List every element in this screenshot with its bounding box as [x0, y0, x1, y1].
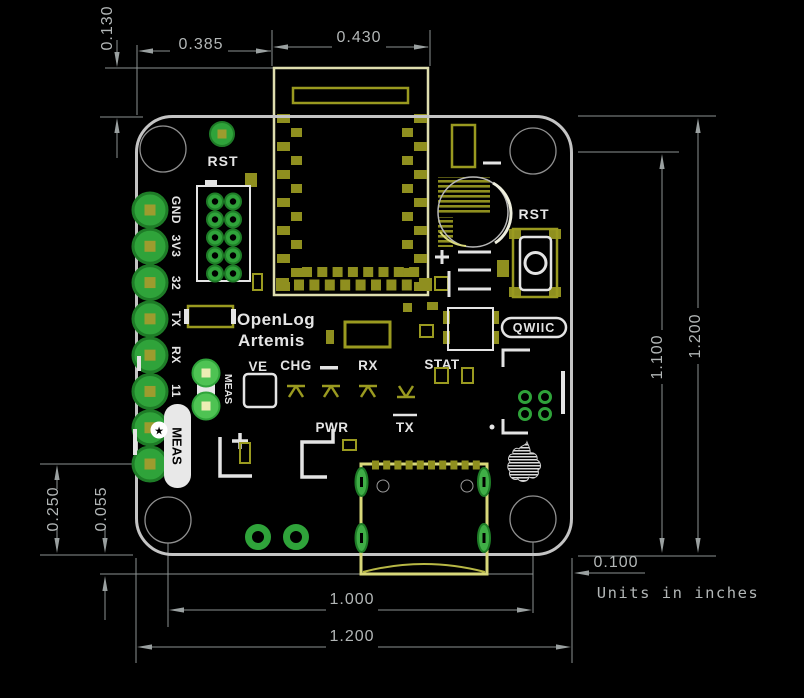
- chg-label: CHG: [280, 358, 312, 373]
- module-antenna: [293, 88, 408, 103]
- drawing-canvas: 0.130 0.385 0.430 1.200 1.100 0.250 0.05…: [0, 0, 804, 698]
- meas-jumper: MEAS: [193, 360, 235, 420]
- module-pad: [414, 226, 427, 235]
- star-icon: ★: [154, 426, 164, 438]
- via-pad: [520, 409, 531, 420]
- usb-pad: [394, 461, 401, 470]
- module-pad: [402, 128, 413, 137]
- dim-module-left-offset: 0.385: [178, 36, 223, 53]
- dimension-arrow: [414, 44, 429, 49]
- edge-tick: [133, 429, 137, 455]
- pin-pad-center: [145, 205, 156, 216]
- module-pad: [419, 278, 432, 291]
- usb-pad: [417, 461, 424, 470]
- module-pad: [340, 280, 350, 291]
- stat-label: STAT: [424, 357, 459, 372]
- dimension-arrow: [695, 118, 700, 133]
- rst-pad-group: RST: [208, 122, 258, 187]
- module-pad: [317, 267, 327, 277]
- dim-pin-to-edge: 0.250: [45, 486, 62, 531]
- module-pad: [356, 280, 366, 291]
- rst-pad-center: [218, 130, 227, 139]
- crystal-outline: [345, 322, 390, 347]
- passive-component: [326, 330, 334, 344]
- pin-label-rx: RX: [169, 346, 183, 364]
- via-grid: [520, 392, 551, 420]
- pin-pad-center: [145, 277, 156, 288]
- usb-pad: [462, 461, 469, 470]
- icsp-pad-hole: [230, 270, 236, 276]
- pin-label-tx: TX: [169, 311, 183, 327]
- alignment-hole: [461, 480, 473, 492]
- module-pad: [414, 198, 427, 207]
- pin-pad-center: [145, 241, 156, 252]
- icsp-pad-hole: [212, 216, 218, 222]
- icsp-pad-hole: [212, 252, 218, 258]
- annular-pad: [287, 528, 306, 547]
- via-pad: [520, 392, 531, 403]
- rst-top-label: RST: [208, 153, 239, 169]
- dimension-arrow: [114, 118, 119, 133]
- module-castellated-pads: [276, 114, 432, 291]
- module-pad: [379, 267, 389, 277]
- alignment-hole: [377, 480, 389, 492]
- module-pad: [371, 280, 381, 291]
- dim-board-height: 1.200: [687, 313, 704, 358]
- icsp-pads: [207, 194, 241, 282]
- module-pad: [333, 267, 343, 277]
- dim-module-top-offset: 0.130: [99, 5, 116, 50]
- passive-component: [462, 368, 473, 383]
- led-label-row: VE CHG RX STAT: [244, 357, 473, 407]
- usb-pad: [473, 461, 480, 470]
- dimension-arrow: [556, 644, 571, 649]
- dimension-arrow: [169, 607, 184, 612]
- module-pad: [302, 267, 312, 277]
- module-pad: [277, 142, 290, 151]
- module-pad: [277, 226, 290, 235]
- dimension-arrow: [137, 644, 152, 649]
- module-pad: [348, 267, 358, 277]
- dim-hole-to-bottom: 1.100: [649, 334, 666, 379]
- via-pad: [540, 409, 551, 420]
- dimension-arrow: [695, 538, 700, 553]
- module-pad: [325, 280, 335, 291]
- module-pad: [277, 170, 290, 179]
- module-pad: [386, 280, 396, 291]
- pin-pad-center: [145, 313, 156, 324]
- rx-label: RX: [358, 358, 378, 373]
- passive-component: [420, 325, 433, 337]
- connector-body: [448, 308, 493, 350]
- dim-board-width: 1.200: [329, 628, 374, 645]
- pin-pad-center: [145, 459, 156, 470]
- dim-connector-overhang: 0.055: [93, 486, 110, 531]
- usb-pad: [428, 461, 435, 470]
- icsp-pad-hole: [212, 270, 218, 276]
- dimension-arrow: [659, 538, 664, 553]
- ic-outline: [244, 374, 276, 407]
- dimension-arrow: [273, 44, 288, 49]
- icsp-header: [197, 180, 250, 282]
- pin-label-11: 11: [169, 384, 183, 398]
- module-pad: [414, 142, 427, 151]
- pin-label-3v3: 3V3: [169, 235, 183, 258]
- battery-clip-hatch: [438, 177, 490, 215]
- board-name-line2: Artemis: [238, 331, 305, 350]
- corner-bracket: [503, 350, 530, 367]
- module-pad: [402, 156, 413, 165]
- dimension-arrow: [138, 48, 153, 53]
- led-mark: [359, 386, 377, 397]
- icsp-pad-hole: [212, 198, 218, 204]
- pad-slot: [483, 477, 486, 487]
- module-pad: [402, 240, 413, 249]
- mounting-hole-top-left: [140, 126, 186, 172]
- passive-component: [435, 277, 448, 290]
- battery-holder: [435, 177, 511, 297]
- icsp-pad-hole: [212, 234, 218, 240]
- module-pad: [409, 267, 419, 277]
- module-pad: [402, 212, 413, 221]
- mounting-hole-bottom-right: [510, 496, 556, 542]
- resistor-outline: [188, 306, 233, 327]
- artemis-module: [274, 68, 432, 295]
- led-mark: [287, 386, 305, 397]
- dimension-arrow: [114, 52, 119, 67]
- usb-pad: [406, 461, 413, 470]
- left-pin-header: GND 3V3 32 TX RX 11 MEAS ★: [133, 193, 191, 488]
- mounting-hole-top-right: [510, 128, 556, 174]
- icsp-pad-hole: [230, 252, 236, 258]
- pad-slot: [360, 477, 363, 487]
- corner-bracket: [503, 419, 528, 433]
- led-mark: [397, 386, 415, 397]
- dimension-arrow: [517, 607, 532, 612]
- module-pad: [402, 280, 412, 291]
- jumper-pad-center: [202, 402, 211, 411]
- qwiic-connector: QWIIC: [443, 308, 566, 367]
- module-pad: [291, 184, 302, 193]
- meas-jumper-label: MEAS: [222, 374, 234, 404]
- component-cap: [231, 309, 236, 324]
- qwiic-label: QWIIC: [513, 321, 556, 335]
- silk-dot: [490, 425, 495, 430]
- mounting-hole-bottom-left: [145, 497, 191, 543]
- pin-label-32: 32: [169, 276, 183, 290]
- usb-pad: [450, 461, 457, 470]
- module-pad: [291, 212, 302, 221]
- bottom-right-details: [490, 371, 566, 481]
- module-pad: [277, 254, 290, 263]
- module-pad: [291, 128, 302, 137]
- module-pad: [291, 268, 302, 277]
- passive-component: [403, 303, 412, 312]
- ve-label: VE: [248, 359, 267, 374]
- power-symbol-right: [302, 429, 333, 477]
- pin-label-gnd: GND: [169, 196, 183, 224]
- pcb-dimensional-drawing: 0.130 0.385 0.430 1.200 1.100 0.250 0.05…: [0, 0, 804, 698]
- led-polarity-marks: [287, 386, 415, 397]
- dimension-arrow: [256, 48, 271, 53]
- dim-module-width: 0.430: [336, 29, 381, 46]
- rst-button-label: RST: [519, 206, 550, 222]
- dimension-arrow: [659, 154, 664, 169]
- annular-pad: [249, 528, 268, 547]
- dimension-arrow: [54, 465, 59, 480]
- module-pad: [294, 280, 304, 291]
- dimension-arrow: [102, 576, 107, 591]
- board-name-line1: OpenLog: [237, 310, 315, 329]
- usb-pad: [383, 461, 390, 470]
- module-pad: [414, 170, 427, 179]
- dimension-arrow: [102, 538, 107, 553]
- module-pad: [414, 254, 427, 263]
- icsp-pad-hole: [230, 216, 236, 222]
- tx-label: TX: [396, 420, 414, 435]
- module-pad: [363, 267, 373, 277]
- meas-badge-label: MEAS: [170, 427, 185, 465]
- pad-slot: [360, 533, 363, 543]
- module-pad: [291, 156, 302, 165]
- module-pad: [276, 278, 289, 291]
- module-pad: [402, 184, 413, 193]
- passive-component: [497, 260, 509, 277]
- module-pad: [277, 198, 290, 207]
- pin-pad-center: [145, 386, 156, 397]
- passive-component: [253, 274, 262, 290]
- pin-pad-center: [145, 350, 156, 361]
- usb-c-connector: [356, 461, 491, 575]
- button-pad: [509, 287, 521, 297]
- passive-component: [452, 125, 475, 167]
- reset-button: RST: [509, 206, 561, 297]
- bottom-pads: [249, 528, 306, 547]
- passive-component: [427, 302, 438, 310]
- usb-pad: [439, 461, 446, 470]
- silk-line: [561, 371, 565, 414]
- edge-tick: [137, 356, 141, 371]
- icsp-pad-hole: [230, 234, 236, 240]
- sparkfun-flame-logo: [508, 442, 541, 481]
- icsp-notch: [205, 180, 217, 187]
- module-pad: [291, 240, 302, 249]
- pad-slot: [483, 533, 486, 543]
- dimension-arrow: [54, 538, 59, 553]
- underscore-mark: [320, 366, 338, 370]
- passive-component: [343, 440, 356, 450]
- dimension-arrow: [574, 570, 589, 575]
- usb-pad: [372, 461, 379, 470]
- via-pad: [540, 392, 551, 403]
- led-mark: [322, 386, 340, 397]
- usb-overhang-arc: [363, 564, 485, 572]
- module-pad: [309, 280, 319, 291]
- module-pad: [394, 267, 404, 277]
- component-cap: [184, 309, 189, 324]
- dim-hole-edge-offset: 0.100: [593, 554, 638, 571]
- passive-component: [245, 173, 257, 187]
- jumper-pad-center: [202, 369, 211, 378]
- button-actuator: [525, 253, 546, 274]
- icsp-pad-hole: [230, 198, 236, 204]
- button-pad: [509, 229, 521, 239]
- units-note: Units in inches: [597, 584, 759, 602]
- dim-hole-spacing: 1.000: [329, 591, 374, 608]
